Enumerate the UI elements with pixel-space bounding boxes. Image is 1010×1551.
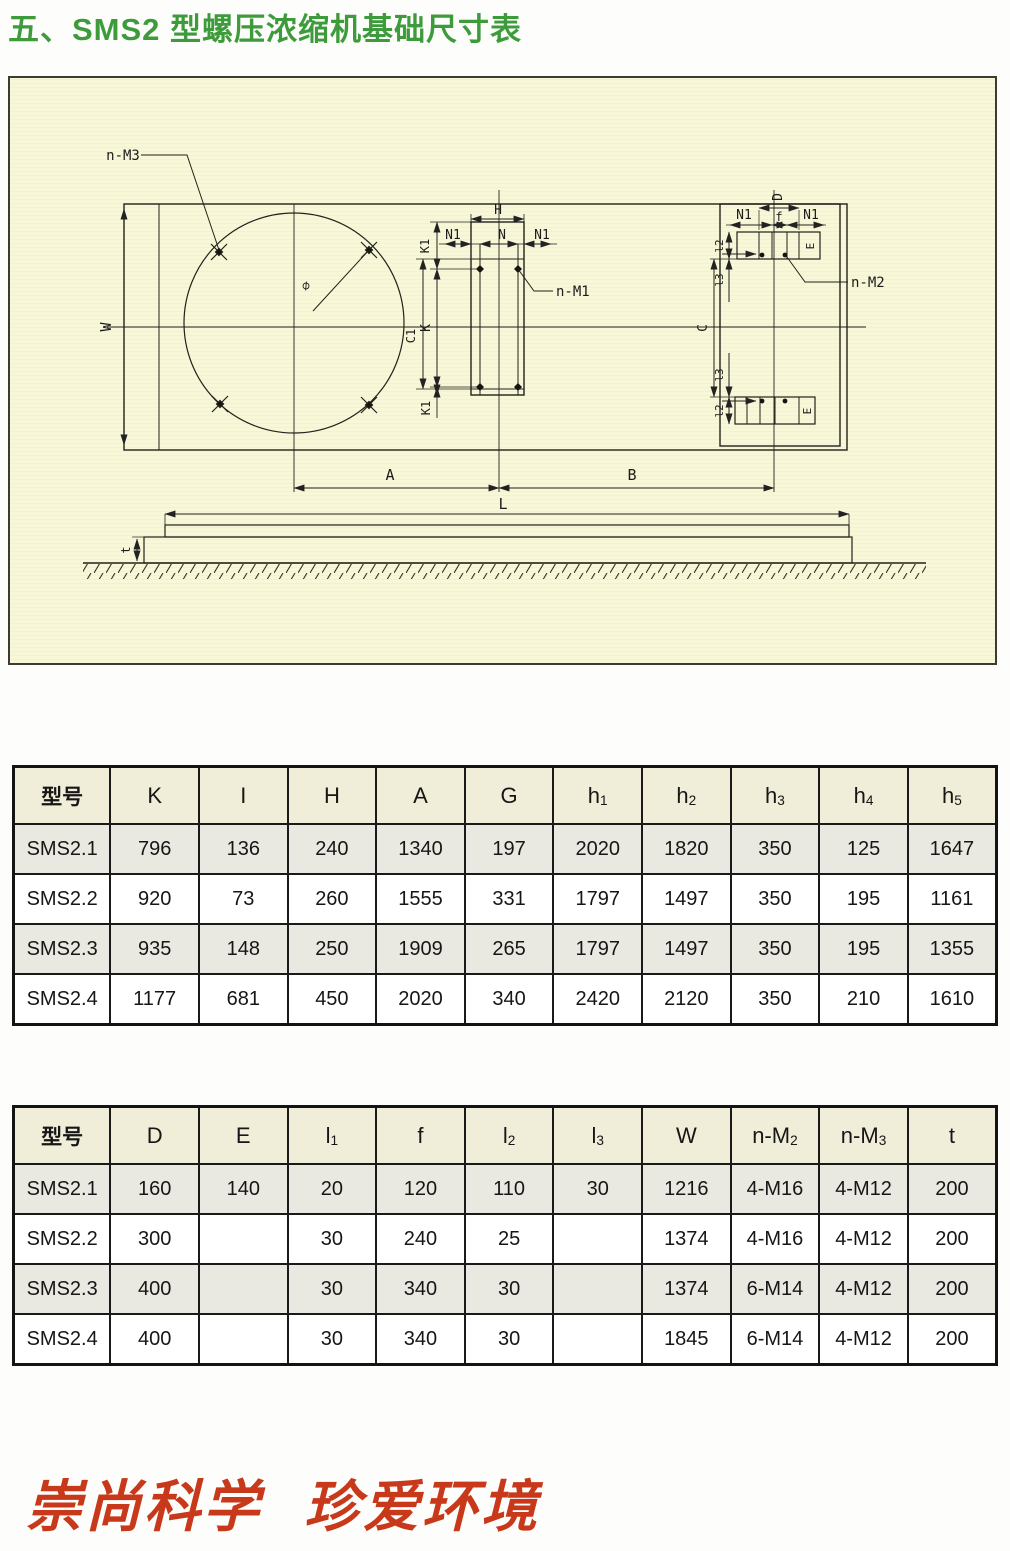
- value-cell: 2020: [376, 974, 465, 1025]
- bolt-hole: [476, 383, 484, 391]
- header-text: E: [236, 1123, 251, 1148]
- bolt-hole: [783, 399, 788, 404]
- column-header: h1: [553, 767, 642, 825]
- value-cell: 1820: [642, 824, 731, 874]
- dim-label-k: K: [419, 324, 434, 332]
- anchor-bolt-mark: [211, 244, 227, 260]
- column-header: h4: [819, 767, 908, 825]
- value-cell: 1555: [376, 874, 465, 924]
- footer-slogan: 崇尚科学珍爱环境: [26, 1462, 540, 1543]
- value-cell: [553, 1214, 642, 1264]
- value-cell: 1797: [553, 924, 642, 974]
- header-text: n-M: [841, 1123, 879, 1148]
- dim-label-e: E: [801, 408, 814, 415]
- column-header: G: [465, 767, 554, 825]
- header-text: h: [765, 783, 777, 808]
- value-cell: 250: [288, 924, 377, 974]
- header-text: f: [417, 1123, 423, 1148]
- value-cell: 240: [376, 1214, 465, 1264]
- value-cell: 200: [908, 1264, 997, 1314]
- value-cell: 350: [731, 924, 820, 974]
- table-row: SMS2.2920732601555331179714973501951161: [14, 874, 997, 924]
- header-text: n-M: [752, 1123, 790, 1148]
- column-header: n-M2: [731, 1107, 820, 1165]
- header-text: A: [413, 783, 428, 808]
- model-cell: SMS2.1: [14, 824, 111, 874]
- dim-label-c: C: [696, 324, 711, 332]
- dim-label-l2: l2: [713, 404, 726, 417]
- value-cell: 148: [199, 924, 288, 974]
- header-subscript: 2: [508, 1133, 516, 1148]
- ground-hatch: [83, 564, 926, 579]
- anchor-bolt-mark: [361, 397, 377, 413]
- value-cell: 1374: [642, 1214, 731, 1264]
- dim-label-b: B: [627, 466, 636, 484]
- bolt-hole: [760, 253, 765, 258]
- dim-label-n-m1: n-M1: [556, 284, 590, 300]
- dimension-table: 型号KIHAGh1h2h3h4h5SMS2.179613624013401972…: [12, 765, 998, 1026]
- callout-n-m3: n-M3: [106, 148, 219, 250]
- value-cell: 136: [199, 824, 288, 874]
- value-cell: [199, 1214, 288, 1264]
- header-text: h: [942, 783, 954, 808]
- value-cell: 4-M12: [819, 1164, 908, 1214]
- table-row: SMS2.4400303403018456-M144-M12200: [14, 1314, 997, 1365]
- value-cell: 4-M12: [819, 1264, 908, 1314]
- bolt-hole: [476, 265, 484, 273]
- foundation-drawing: ∅ n-M3 W: [10, 78, 995, 663]
- value-cell: 1797: [553, 874, 642, 924]
- value-cell: [199, 1264, 288, 1314]
- slogan-part-2: 珍爱环境: [304, 1477, 540, 1539]
- dim-label-l: L: [498, 495, 507, 513]
- value-cell: 30: [553, 1164, 642, 1214]
- table-row: SMS2.3400303403013746-M144-M12200: [14, 1264, 997, 1314]
- value-cell: 796: [110, 824, 199, 874]
- value-cell: 681: [199, 974, 288, 1025]
- dim-label-k1: K1: [419, 401, 433, 415]
- header-text: t: [949, 1123, 955, 1148]
- value-cell: 195: [819, 924, 908, 974]
- dim-label-l2: l2: [713, 239, 726, 252]
- dimension-table-2-wrap: 型号DEl1fl2l3Wn-M2n-M3tSMS2.11601402012011…: [12, 1105, 998, 1358]
- table-row: SMS2.39351482501909265179714973501951355: [14, 924, 997, 974]
- slab-base: [144, 537, 852, 563]
- column-header: I: [199, 767, 288, 825]
- value-cell: 1497: [642, 874, 731, 924]
- value-cell: 340: [376, 1314, 465, 1365]
- dim-label-w: W: [97, 322, 115, 332]
- value-cell: 1177: [110, 974, 199, 1025]
- side-view: [83, 525, 926, 579]
- header-text: 型号: [41, 1126, 83, 1149]
- dimension-table-1-wrap: 型号KIHAGh1h2h3h4h5SMS2.179613624013401972…: [12, 765, 998, 1018]
- header-subscript: 3: [879, 1133, 887, 1148]
- model-cell: SMS2.2: [14, 874, 111, 924]
- value-cell: 4-M12: [819, 1314, 908, 1365]
- table-row: SMS2.17961362401340197202018203501251647: [14, 824, 997, 874]
- value-cell: 340: [465, 974, 554, 1025]
- value-cell: 30: [288, 1214, 377, 1264]
- value-cell: 340: [376, 1264, 465, 1314]
- dim-label-f: f: [775, 210, 782, 224]
- value-cell: 30: [465, 1264, 554, 1314]
- model-cell: SMS2.3: [14, 924, 111, 974]
- column-header: l3: [553, 1107, 642, 1165]
- value-cell: 4-M12: [819, 1214, 908, 1264]
- header-text: h: [588, 783, 600, 808]
- value-cell: 110: [465, 1164, 554, 1214]
- diameter-callout: ∅: [299, 250, 369, 311]
- header-text: D: [147, 1123, 163, 1148]
- value-cell: 2420: [553, 974, 642, 1025]
- value-cell: 350: [731, 824, 820, 874]
- value-cell: 400: [110, 1264, 199, 1314]
- value-cell: 1845: [642, 1314, 731, 1365]
- value-cell: 160: [110, 1164, 199, 1214]
- value-cell: 30: [465, 1314, 554, 1365]
- column-header: f: [376, 1107, 465, 1165]
- table-row: SMS2.2300302402513744-M164-M12200: [14, 1214, 997, 1264]
- value-cell: 125: [819, 824, 908, 874]
- value-cell: 265: [465, 924, 554, 974]
- header-row: 型号DEl1fl2l3Wn-M2n-M3t: [14, 1107, 997, 1165]
- dim-label-k1: K1: [418, 239, 432, 253]
- header-row: 型号KIHAGh1h2h3h4h5: [14, 767, 997, 825]
- dim-label-t: t: [119, 546, 133, 553]
- value-cell: 2020: [553, 824, 642, 874]
- dim-label-n1: N1: [736, 208, 752, 223]
- value-cell: [199, 1314, 288, 1365]
- value-cell: 2120: [642, 974, 731, 1025]
- header-text: I: [240, 783, 246, 808]
- header-subscript: 5: [954, 793, 962, 808]
- value-cell: 4-M16: [731, 1214, 820, 1264]
- column-header: l2: [465, 1107, 554, 1165]
- value-cell: 400: [110, 1314, 199, 1365]
- page-title: 五、SMS2 型螺压浓缩机基础尺寸表: [8, 4, 522, 49]
- dim-label-l3: l3: [713, 273, 726, 286]
- dim-label-n1: N1: [534, 228, 550, 243]
- column-header: E: [199, 1107, 288, 1165]
- value-cell: 200: [908, 1164, 997, 1214]
- value-cell: 920: [110, 874, 199, 924]
- value-cell: 120: [376, 1164, 465, 1214]
- header-text: W: [676, 1123, 697, 1148]
- dim-label-n-m2: n-M2: [851, 275, 885, 291]
- column-header: K: [110, 767, 199, 825]
- dim-label-n-m3: n-M3: [106, 148, 140, 164]
- value-cell: 1909: [376, 924, 465, 974]
- foundation-drawing-panel: ∅ n-M3 W: [8, 76, 997, 665]
- value-cell: 1355: [908, 924, 997, 974]
- anchor-bolt-mark: [212, 396, 228, 412]
- value-cell: 1374: [642, 1264, 731, 1314]
- table-row: SMS2.1160140201201103012164-M164-M12200: [14, 1164, 997, 1214]
- value-cell: 1647: [908, 824, 997, 874]
- header-subscript: 2: [790, 1133, 798, 1148]
- value-cell: 1340: [376, 824, 465, 874]
- value-cell: 350: [731, 974, 820, 1025]
- value-cell: 260: [288, 874, 377, 924]
- dim-label-a: A: [385, 466, 394, 484]
- header-text: h: [854, 783, 866, 808]
- column-header: W: [642, 1107, 731, 1165]
- model-cell: SMS2.4: [14, 1314, 111, 1365]
- right-flange-bolts: [760, 253, 788, 404]
- model-cell: SMS2.1: [14, 1164, 111, 1214]
- column-header: h3: [731, 767, 820, 825]
- value-cell: 20: [288, 1164, 377, 1214]
- column-header: D: [110, 1107, 199, 1165]
- callout-n-m2: n-M2: [787, 257, 885, 291]
- header-subscript: 3: [777, 793, 785, 808]
- dim-label-l3: l3: [713, 368, 726, 381]
- value-cell: [553, 1264, 642, 1314]
- dim-label-phi: ∅: [299, 278, 315, 295]
- value-cell: 197: [465, 824, 554, 874]
- value-cell: 140: [199, 1164, 288, 1214]
- dimension-table: 型号DEl1fl2l3Wn-M2n-M3tSMS2.11601402012011…: [12, 1105, 998, 1366]
- dim-label-c1: C1: [404, 329, 418, 343]
- value-cell: 30: [288, 1264, 377, 1314]
- value-cell: 4-M16: [731, 1164, 820, 1214]
- dim-label-h: H: [494, 203, 502, 218]
- column-header: t: [908, 1107, 997, 1165]
- dim-label-d: D: [771, 193, 786, 201]
- value-cell: 300: [110, 1214, 199, 1264]
- column-header: 型号: [14, 1107, 111, 1165]
- header-subscript: 4: [866, 793, 874, 808]
- value-cell: 6-M14: [731, 1264, 820, 1314]
- column-header: h2: [642, 767, 731, 825]
- header-subscript: 2: [689, 793, 697, 808]
- slogan-part-1: 崇尚科学: [26, 1477, 262, 1539]
- value-cell: 210: [819, 974, 908, 1025]
- value-cell: 1610: [908, 974, 997, 1025]
- value-cell: 240: [288, 824, 377, 874]
- value-cell: 350: [731, 874, 820, 924]
- value-cell: 195: [819, 874, 908, 924]
- column-header: h5: [908, 767, 997, 825]
- header-text: H: [324, 783, 340, 808]
- value-cell: 30: [288, 1314, 377, 1365]
- dim-label-n1: N1: [803, 208, 819, 223]
- value-cell: 73: [199, 874, 288, 924]
- callout-n-m1: n-M1: [518, 269, 590, 300]
- model-cell: SMS2.2: [14, 1214, 111, 1264]
- header-subscript: 1: [331, 1133, 339, 1148]
- header-subscript: 3: [596, 1133, 604, 1148]
- value-cell: 25: [465, 1214, 554, 1264]
- model-cell: SMS2.3: [14, 1264, 111, 1314]
- value-cell: 450: [288, 974, 377, 1025]
- right-flange: [710, 204, 840, 446]
- header-subscript: 1: [600, 793, 608, 808]
- dim-label-e: E: [804, 243, 817, 250]
- header-text: 型号: [41, 786, 83, 809]
- slab-top: [165, 525, 849, 537]
- column-header: l1: [288, 1107, 377, 1165]
- value-cell: 200: [908, 1314, 997, 1365]
- dim-label-n1: N1: [445, 228, 461, 243]
- bolt-hole: [514, 383, 522, 391]
- value-cell: [553, 1314, 642, 1365]
- bolt-hole: [783, 253, 788, 258]
- mid-flange: [416, 214, 557, 418]
- value-cell: 1216: [642, 1164, 731, 1214]
- catalog-page: 五、SMS2 型螺压浓缩机基础尺寸表: [0, 0, 1010, 1551]
- column-header: 型号: [14, 767, 111, 825]
- dim-label-n: N: [498, 228, 506, 243]
- value-cell: 331: [465, 874, 554, 924]
- table-row: SMS2.41177681450202034024202120350210161…: [14, 974, 997, 1025]
- header-text: h: [676, 783, 688, 808]
- column-header: H: [288, 767, 377, 825]
- value-cell: 200: [908, 1214, 997, 1264]
- header-text: l: [326, 1123, 331, 1148]
- plan-view: [107, 190, 866, 492]
- value-cell: 1161: [908, 874, 997, 924]
- header-text: G: [501, 783, 518, 808]
- header-text: K: [147, 783, 162, 808]
- model-cell: SMS2.4: [14, 974, 111, 1025]
- column-header: A: [376, 767, 465, 825]
- mid-flange-labels: H N N1 N1 K1 K K1 C1: [404, 203, 550, 415]
- bolt-hole: [760, 399, 765, 404]
- value-cell: 935: [110, 924, 199, 974]
- value-cell: 1497: [642, 924, 731, 974]
- value-cell: 6-M14: [731, 1314, 820, 1365]
- column-header: n-M3: [819, 1107, 908, 1165]
